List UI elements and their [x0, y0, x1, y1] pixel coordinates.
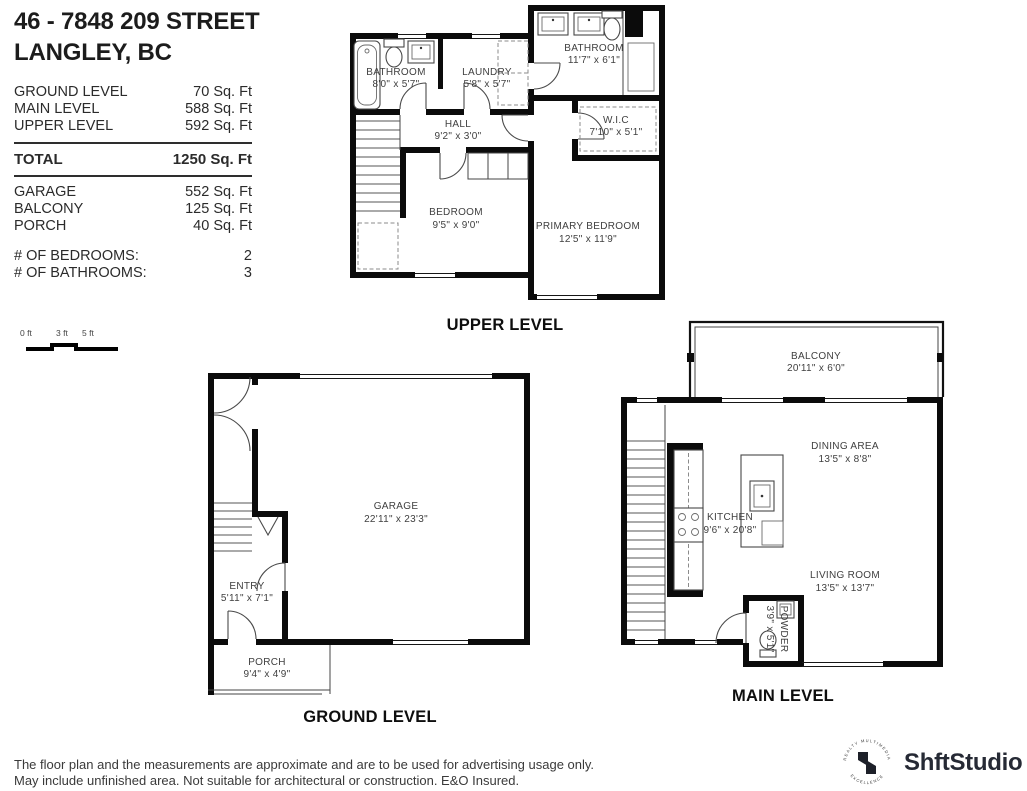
room-label-entry: ENTRY 5'11" x 7'1" — [221, 581, 273, 604]
svg-text:BATHROOM: BATHROOM — [366, 67, 425, 78]
svg-text:BATHROOM: BATHROOM — [564, 43, 623, 54]
divider — [14, 175, 252, 177]
closet-icon — [468, 153, 528, 179]
count-label: # OF BATHROOMS: — [14, 265, 147, 282]
divider — [14, 142, 252, 144]
svg-text:EXCELLENCE: EXCELLENCE — [849, 773, 884, 785]
total-value: 1250 Sq. Ft — [173, 151, 252, 168]
area-value: 552 Sq. Ft — [185, 184, 252, 201]
room-label-bathroom2: BATHROOM 11'7" x 6'1" — [564, 43, 623, 66]
svg-text:DINING AREA: DINING AREA — [811, 441, 879, 452]
room-label-balcony: BALCONY 20'11" x 6'0" — [787, 351, 845, 374]
count-value: 2 — [244, 248, 252, 265]
shftstudio-logo: REALTY MULTIMEDIA EXCELLENCE ShftStudio — [840, 736, 1022, 790]
svg-text:LAUNDRY: LAUNDRY — [462, 67, 512, 78]
room-label-dining: DINING AREA 13'5" x 8'8" — [811, 441, 879, 465]
total-label: TOTAL — [14, 151, 63, 168]
room-label-porch: PORCH 9'4" x 4'9" — [243, 657, 290, 680]
svg-text:20'11" x 6'0": 20'11" x 6'0" — [787, 363, 845, 374]
area-value: 588 Sq. Ft — [185, 101, 252, 118]
room-label-living: LIVING ROOM 13'5" x 13'7" — [810, 570, 880, 594]
area-row-main: MAIN LEVEL 588 Sq. Ft — [14, 101, 252, 118]
disclaimer-line1: The floor plan and the measurements are … — [14, 757, 594, 773]
svg-text:W.I.C: W.I.C — [603, 115, 629, 126]
svg-text:8'0" x 5'7": 8'0" x 5'7" — [372, 79, 419, 90]
toilet-icon — [384, 39, 404, 67]
svg-text:POWDER: POWDER — [778, 606, 789, 653]
bathrooms-count-row: # OF BATHROOMS: 3 — [14, 265, 252, 282]
svg-text:GARAGE: GARAGE — [374, 501, 419, 512]
scale-label-0ft: 0 ft — [20, 328, 32, 338]
svg-text:KITCHEN: KITCHEN — [707, 512, 753, 523]
area-label: UPPER LEVEL — [14, 118, 113, 135]
toilet-icon — [602, 11, 622, 40]
area-value: 592 Sq. Ft — [185, 118, 252, 135]
walls — [208, 373, 530, 695]
svg-text:PRIMARY BEDROOM: PRIMARY BEDROOM — [536, 221, 640, 232]
area-row-ground: GROUND LEVEL 70 Sq. Ft — [14, 84, 252, 101]
svg-text:9'4" x 4'9": 9'4" x 4'9" — [243, 669, 290, 680]
brand-wordmark: ShftStudio — [904, 749, 1022, 777]
svg-text:BALCONY: BALCONY — [791, 351, 841, 362]
svg-text:3'9" x 5'1": 3'9" x 5'1" — [764, 605, 775, 652]
svg-text:11'7" x 6'1": 11'7" x 6'1" — [568, 55, 620, 66]
main-level-title: MAIN LEVEL — [613, 687, 953, 706]
svg-text:BEDROOM: BEDROOM — [429, 207, 483, 218]
svg-text:13'5" x 13'7": 13'5" x 13'7" — [816, 583, 875, 594]
disclaimer: The floor plan and the measurements are … — [14, 757, 594, 789]
area-label: GARAGE — [14, 184, 76, 201]
room-label-bedroom: BEDROOM 9'5" x 9'0" — [429, 207, 483, 231]
svg-text:9'5" x 9'0": 9'5" x 9'0" — [432, 220, 479, 231]
svg-text:12'5" x 11'9": 12'5" x 11'9" — [559, 234, 617, 245]
sink-icon — [408, 41, 434, 63]
svg-text:LIVING ROOM: LIVING ROOM — [810, 570, 880, 581]
svg-text:5'8" x 5'7": 5'8" x 5'7" — [463, 79, 510, 90]
door-arc-icons — [716, 613, 746, 643]
floorplan-flyer: 46 - 7848 209 STREET LANGLEY, BC GROUND … — [0, 0, 1027, 791]
svg-text:13'5" x 8'8": 13'5" x 8'8" — [819, 454, 872, 465]
upper-level-floorplan: BATHROOM 8'0" x 5'7" LAUNDRY 5'8" x 5'7"… — [340, 3, 670, 313]
svg-text:ENTRY: ENTRY — [229, 581, 264, 592]
area-row-upper: UPPER LEVEL 592 Sq. Ft — [14, 118, 252, 135]
area-label: MAIN LEVEL — [14, 101, 99, 118]
svg-text:9'6" x 20'8": 9'6" x 20'8" — [704, 525, 757, 536]
svg-text:HALL: HALL — [445, 119, 471, 130]
stairs-icon — [356, 115, 400, 269]
scale-ruler-icon — [18, 340, 128, 354]
address-line1: 46 - 7848 209 STREET — [14, 6, 259, 37]
address-line2: LANGLEY, BC — [14, 37, 259, 68]
main-level-floorplan: BALCONY 20'11" x 6'0" DINING AREA 13'5" … — [613, 313, 953, 683]
stairs-icon — [214, 503, 252, 551]
scale-label-3ft: 3 ft — [56, 328, 68, 338]
room-label-hall: HALL 9'2" x 3'0" — [434, 119, 481, 142]
room-label-bathroom1: BATHROOM 8'0" x 5'7" — [366, 67, 425, 90]
room-label-primary-bedroom: PRIMARY BEDROOM 12'5" x 11'9" — [536, 221, 640, 245]
svg-text:PORCH: PORCH — [248, 657, 286, 668]
room-label-wic: W.I.C 7'10" x 5'1" — [590, 115, 643, 138]
count-label: # OF BEDROOMS: — [14, 248, 139, 265]
area-value: 40 Sq. Ft — [193, 218, 252, 235]
svg-text:7'10" x 5'1": 7'10" x 5'1" — [590, 127, 643, 138]
area-value: 125 Sq. Ft — [185, 201, 252, 218]
area-label: PORCH — [14, 218, 66, 235]
double-sink-icon — [538, 13, 604, 35]
area-label: GROUND LEVEL — [14, 84, 128, 101]
floor-area-table: GROUND LEVEL 70 Sq. Ft MAIN LEVEL 588 Sq… — [14, 84, 252, 282]
area-row-total: TOTAL 1250 Sq. Ft — [14, 151, 252, 168]
ground-level-floorplan: GARAGE 22'11" x 23'3" ENTRY 5'11" x 7'1"… — [200, 363, 540, 708]
scale-label-5ft: 5 ft — [82, 328, 94, 338]
scale-bar: 0 ft 3 ft 5 ft — [18, 328, 128, 358]
svg-text:22'11" x 23'3": 22'11" x 23'3" — [364, 514, 428, 525]
area-value: 70 Sq. Ft — [193, 84, 252, 101]
disclaimer-line2: May include unfinished area. Not suitabl… — [14, 773, 594, 789]
shftstudio-badge-icon: REALTY MULTIMEDIA EXCELLENCE — [840, 736, 894, 790]
stairs-icon — [627, 405, 665, 639]
room-label-laundry: LAUNDRY 5'8" x 5'7" — [462, 67, 512, 90]
count-value: 3 — [244, 265, 252, 282]
svg-text:5'11" x 7'1": 5'11" x 7'1" — [221, 593, 273, 604]
area-row-garage: GARAGE 552 Sq. Ft — [14, 184, 252, 201]
area-row-porch: PORCH 40 Sq. Ft — [14, 218, 252, 235]
property-address: 46 - 7848 209 STREET LANGLEY, BC — [14, 6, 259, 68]
badge-glyph — [858, 752, 876, 774]
ground-level-title: GROUND LEVEL — [200, 708, 540, 727]
room-label-garage: GARAGE 22'11" x 23'3" — [364, 501, 428, 525]
svg-text:9'2" x 3'0": 9'2" x 3'0" — [434, 131, 481, 142]
area-row-balcony: BALCONY 125 Sq. Ft — [14, 201, 252, 218]
bedrooms-count-row: # OF BEDROOMS: 2 — [14, 248, 252, 265]
kitchen-counter-icon — [674, 450, 703, 590]
area-label: BALCONY — [14, 201, 83, 218]
